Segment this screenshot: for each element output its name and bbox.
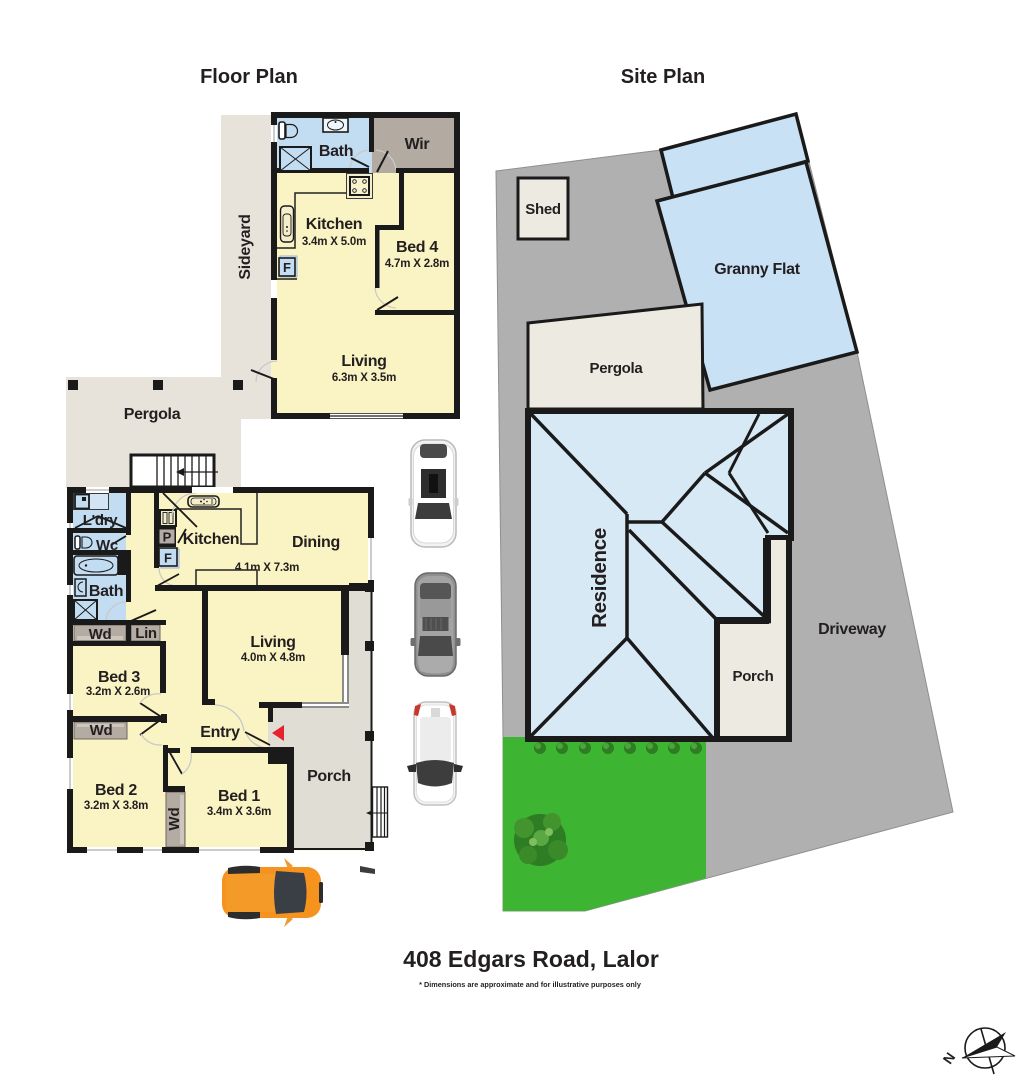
svg-text:Living: Living	[341, 353, 386, 370]
svg-text:Sideyard: Sideyard	[237, 214, 254, 279]
svg-text:F: F	[164, 551, 172, 566]
svg-text:Shed: Shed	[525, 201, 561, 218]
svg-text:Wir: Wir	[405, 136, 430, 153]
svg-text:F: F	[283, 260, 291, 275]
svg-text:4.0m X 4.8m: 4.0m X 4.8m	[241, 652, 305, 664]
svg-text:Granny Flat: Granny Flat	[714, 261, 801, 278]
svg-text:Dining: Dining	[292, 534, 340, 551]
svg-text:Residence: Residence	[588, 528, 611, 628]
svg-text:Bath: Bath	[89, 583, 123, 600]
svg-text:Wd: Wd	[166, 807, 183, 830]
svg-text:Kitchen: Kitchen	[306, 216, 363, 233]
svg-text:Bath: Bath	[319, 143, 353, 160]
svg-text:3.2m X 2.6m: 3.2m X 2.6m	[86, 686, 150, 698]
svg-text:Entry: Entry	[200, 724, 240, 741]
svg-text:4.7m X 2.8m: 4.7m X 2.8m	[385, 258, 449, 270]
svg-text:3.4m X 3.6m: 3.4m X 3.6m	[207, 806, 271, 818]
svg-text:3.2m X 3.8m: 3.2m X 3.8m	[84, 800, 148, 812]
svg-text:Porch: Porch	[732, 668, 773, 685]
svg-text:3.4m X 5.0m: 3.4m X 5.0m	[302, 236, 366, 248]
svg-text:Driveway: Driveway	[818, 621, 886, 638]
svg-text:L'dry: L'dry	[83, 512, 119, 529]
svg-text:Porch: Porch	[307, 768, 351, 785]
svg-text:Site Plan: Site Plan	[621, 66, 705, 88]
svg-text:Bed 2: Bed 2	[95, 782, 137, 799]
svg-text:Living: Living	[250, 634, 295, 651]
svg-text:6.3m X 3.5m: 6.3m X 3.5m	[332, 372, 396, 384]
svg-text:Pergola: Pergola	[590, 360, 644, 377]
svg-text:408 Edgars Road, Lalor: 408 Edgars Road, Lalor	[403, 946, 659, 972]
svg-text:Kitchen: Kitchen	[183, 531, 240, 548]
svg-text:Wd: Wd	[89, 626, 112, 643]
svg-text:P: P	[163, 530, 172, 545]
svg-text:* Dimensions are approximate a: * Dimensions are approximate and for ill…	[419, 980, 642, 989]
svg-text:Wd: Wd	[90, 722, 113, 739]
svg-text:Bed 3: Bed 3	[98, 669, 140, 686]
svg-text:Lin: Lin	[135, 625, 157, 642]
svg-text:Floor Plan: Floor Plan	[200, 66, 298, 88]
svg-text:Bed 1: Bed 1	[218, 788, 260, 805]
svg-text:Bed 4: Bed 4	[396, 239, 438, 256]
svg-text:Pergola: Pergola	[124, 406, 181, 423]
